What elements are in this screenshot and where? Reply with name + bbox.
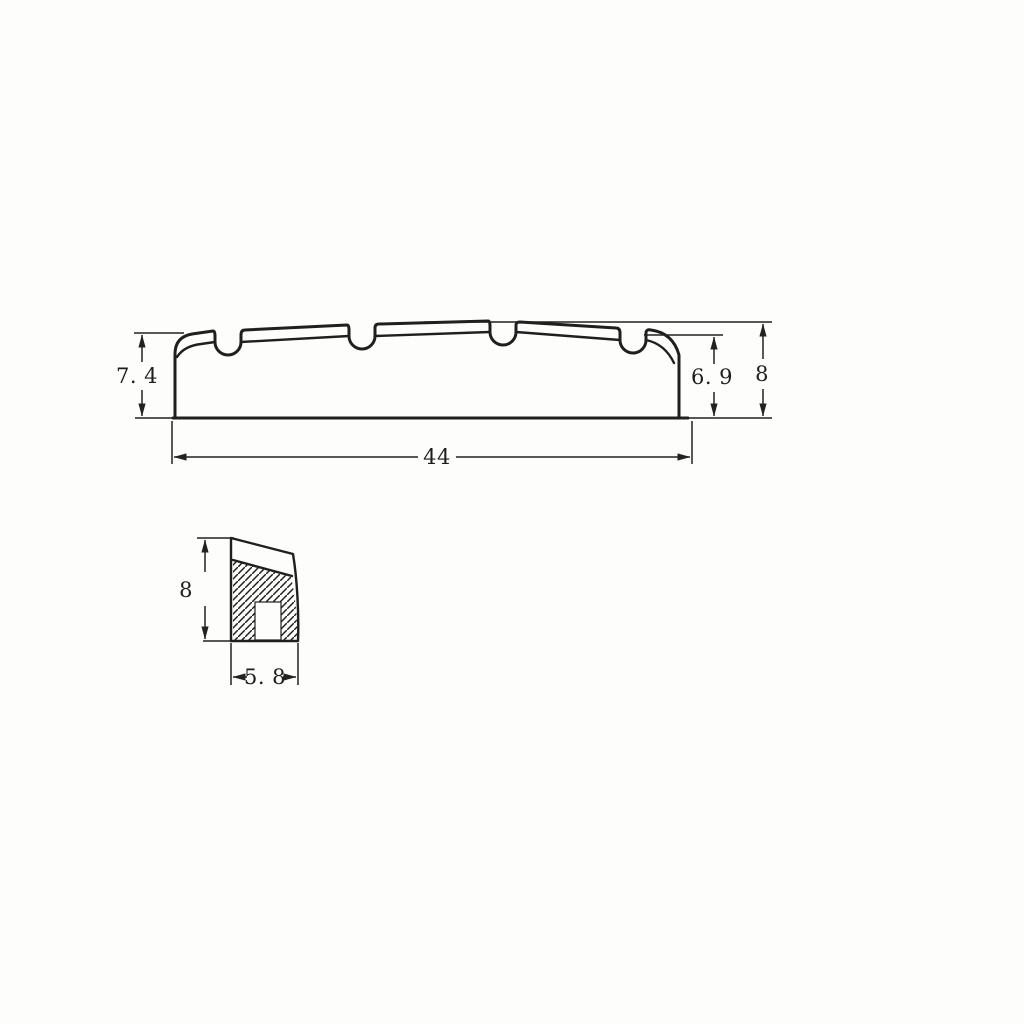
front-bevel-line-3 bbox=[516, 332, 620, 340]
front-bevel-line-2 bbox=[375, 332, 490, 336]
dim-left-height-label: 7. 4 bbox=[116, 364, 158, 388]
dim-right-height-label: 6. 9 bbox=[691, 365, 733, 389]
front-view: 7. 4 6. 9 8 44 bbox=[116, 321, 772, 469]
section-groove-rect bbox=[255, 602, 281, 640]
front-bevel-line-1 bbox=[241, 336, 349, 342]
dim-section-width-label: 5. 8 bbox=[244, 665, 286, 689]
scanned-drawing-page: 7. 4 6. 9 8 44 bbox=[0, 0, 1024, 1024]
dim-section-width: 5. 8 bbox=[231, 643, 298, 689]
dim-overall-width: 44 bbox=[172, 421, 692, 469]
front-bevel-line-right bbox=[646, 340, 674, 363]
technical-drawing-canvas: 7. 4 6. 9 8 44 bbox=[0, 0, 1024, 1024]
dim-section-height-label: 8 bbox=[179, 578, 193, 602]
dim-right-height: 6. 9 bbox=[644, 335, 733, 416]
front-bevel-line-left bbox=[177, 342, 215, 357]
dim-section-height: 8 bbox=[179, 538, 234, 641]
dim-overall-height-label: 8 bbox=[755, 362, 769, 386]
section-view: 8 5. 8 bbox=[179, 538, 298, 689]
front-outline bbox=[175, 321, 679, 417]
dim-overall-width-label: 44 bbox=[423, 445, 451, 469]
